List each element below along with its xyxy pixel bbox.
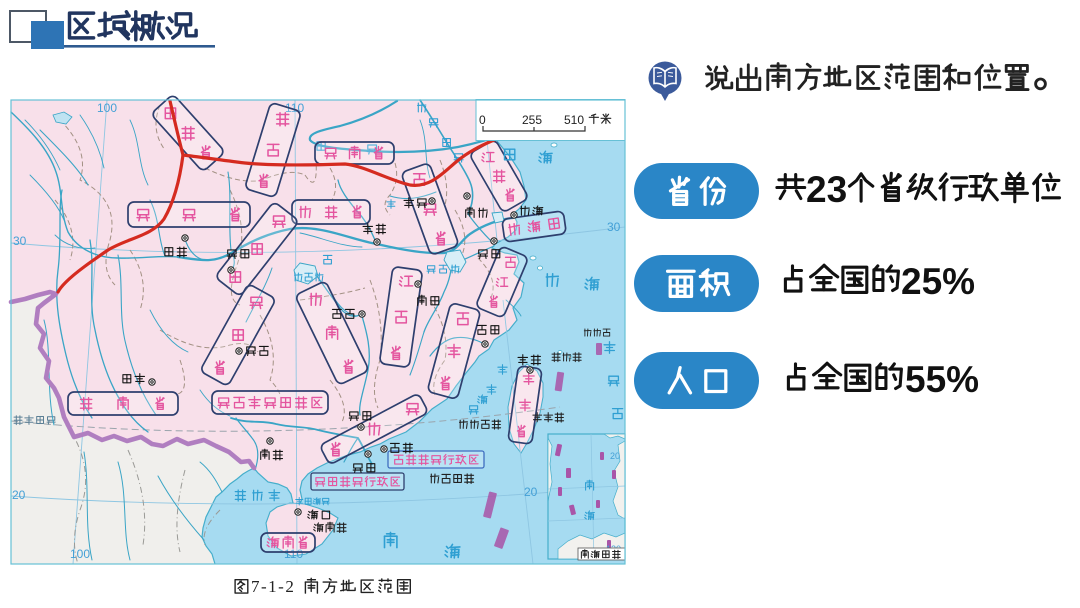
svg-text:100: 100 [97, 101, 117, 115]
svg-text:20: 20 [610, 451, 620, 461]
svg-text:30: 30 [607, 220, 621, 234]
svg-text:20: 20 [12, 488, 26, 502]
svg-text:20: 20 [524, 485, 538, 499]
svg-text:55%: 55% [905, 359, 979, 400]
svg-text:255: 255 [522, 113, 542, 127]
svg-text:100: 100 [70, 547, 90, 561]
svg-text:30: 30 [13, 234, 27, 248]
svg-text:23: 23 [806, 169, 847, 210]
svg-text:7-1-2: 7-1-2 [251, 577, 295, 596]
svg-text:0: 0 [479, 113, 486, 127]
svg-text:25%: 25% [901, 261, 975, 302]
svg-text:510: 510 [564, 113, 584, 127]
